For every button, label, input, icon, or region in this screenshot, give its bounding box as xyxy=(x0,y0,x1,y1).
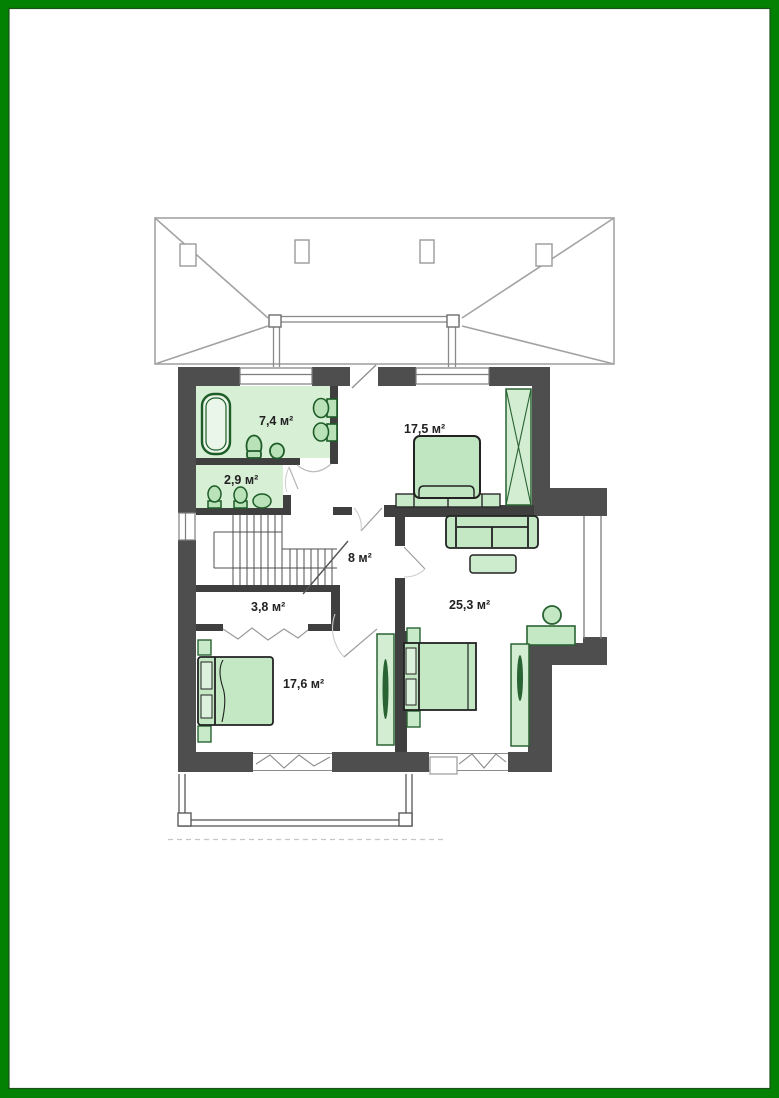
svg-text:17,5 м²: 17,5 м² xyxy=(404,422,445,436)
svg-text:25,3 м²: 25,3 м² xyxy=(449,598,490,612)
svg-text:2,9 м²: 2,9 м² xyxy=(224,473,258,487)
svg-text:3,8 м²: 3,8 м² xyxy=(251,600,285,614)
svg-text:8 м²: 8 м² xyxy=(348,551,372,565)
svg-text:17,6 м²: 17,6 м² xyxy=(283,677,324,691)
svg-text:7,4 м²: 7,4 м² xyxy=(259,414,293,428)
